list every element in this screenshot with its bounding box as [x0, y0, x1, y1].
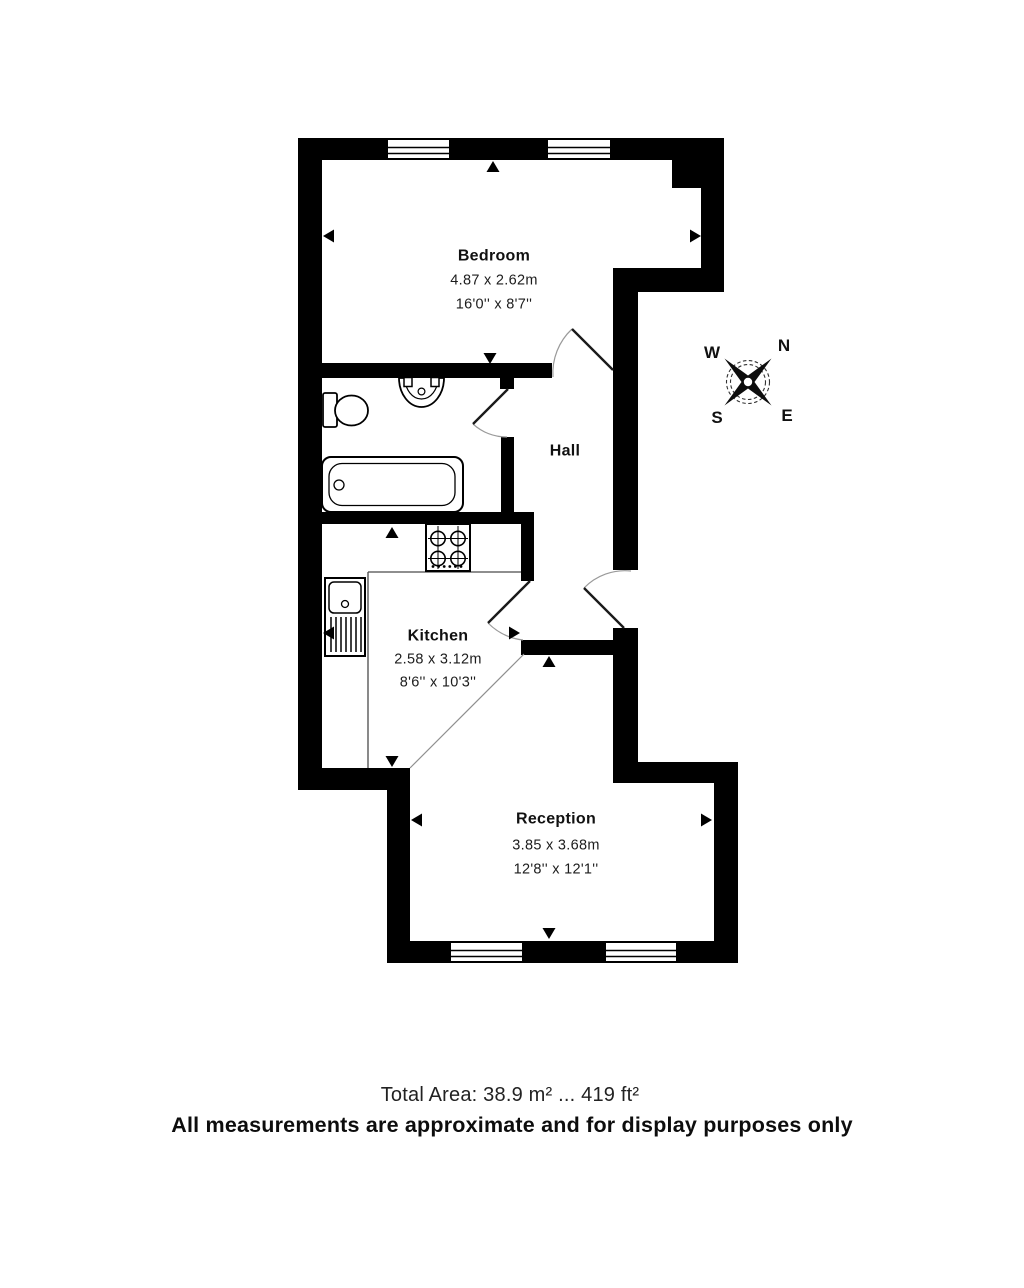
measurement-arrow [323, 230, 334, 243]
window [547, 139, 611, 159]
floor-plan-drawing: Bedroom 4.87 x 2.62m 16'0'' x 8'7'' Hall… [0, 0, 1024, 1288]
wall-bedroom-bottom [322, 363, 552, 378]
wall-reception-right [714, 783, 738, 963]
wall-right-step-upper [613, 268, 724, 292]
window [605, 942, 677, 962]
measurement-arrow [411, 814, 422, 827]
wall-below-front-door [613, 628, 638, 763]
bedroom-door [553, 329, 613, 377]
measurement-arrow [386, 756, 399, 767]
counter-edge [368, 572, 521, 768]
hall-label: Hall [550, 443, 581, 460]
reception-label: Reception [516, 811, 596, 828]
disclaimer-text: All measurements are approximate and for… [171, 1113, 853, 1137]
kitchen-fixtures [325, 524, 521, 768]
door-swing-arc [584, 571, 631, 588]
wall-top [298, 138, 724, 160]
compass-rose-icon: W N S E [704, 336, 793, 427]
footer: Total Area: 38.9 m² ... 419 ft² All meas… [171, 1084, 853, 1137]
wall-kitchen-right [521, 512, 534, 581]
wall-bathroom-door-jamb [500, 363, 514, 389]
compass-north-label: N [778, 336, 790, 355]
kitchen-sink-icon [325, 578, 365, 656]
front-door [584, 571, 631, 628]
bedroom-dims-metric: 4.87 x 2.62m [450, 273, 537, 289]
kitchen-label: Kitchen [408, 628, 469, 645]
bathroom-door [473, 389, 508, 437]
compass-east-label: E [781, 406, 792, 425]
stove-icon [426, 524, 470, 571]
window [387, 139, 450, 159]
measurement-arrow [386, 527, 399, 538]
measurement-arrow [487, 161, 500, 172]
wall-bathroom-bottom [298, 512, 534, 524]
measurement-arrow [509, 627, 520, 640]
wall-hall-right [613, 292, 638, 570]
bathroom-fixtures [322, 378, 463, 513]
floor-plan-page: Bedroom 4.87 x 2.62m 16'0'' x 8'7'' Hall… [0, 0, 1024, 1288]
bedroom-dims-imperial: 16'0'' x 8'7'' [456, 297, 532, 313]
wall-kitchen-step [298, 768, 410, 790]
bathtub-icon [322, 457, 463, 512]
reception-dims-imperial: 12'8'' x 12'1'' [514, 862, 599, 878]
wall-bathroom-right [501, 437, 514, 512]
measurement-arrow [543, 928, 556, 939]
total-area-text: Total Area: 38.9 m² ... 419 ft² [381, 1084, 640, 1106]
window [450, 942, 523, 962]
draining-board-lines [331, 617, 361, 652]
measurement-arrow [701, 814, 712, 827]
wall-hall-bottom [521, 640, 613, 655]
measurement-arrow [690, 230, 701, 243]
kitchen-dims-metric: 2.58 x 3.12m [394, 652, 481, 668]
door-swing-arc [553, 329, 572, 377]
compass-south-label: S [711, 408, 722, 427]
wall-bottom [387, 941, 738, 963]
wall-reception-left [387, 790, 410, 942]
wall-right-step-lower [613, 762, 738, 783]
bedroom-label: Bedroom [458, 248, 530, 265]
measurement-arrow [543, 656, 556, 667]
measurement-arrow [484, 353, 497, 364]
wall-left [298, 160, 322, 790]
door-swing-arc [473, 424, 507, 437]
toilet-icon [323, 393, 368, 427]
kitchen-reception-divider [410, 654, 524, 768]
bathroom-sink-icon [399, 378, 444, 408]
kitchen-dims-imperial: 8'6'' x 10'3'' [400, 675, 476, 691]
compass-west-label: W [704, 343, 721, 362]
door-swing-arc [488, 623, 523, 640]
reception-dims-metric: 3.85 x 3.68m [512, 838, 599, 854]
